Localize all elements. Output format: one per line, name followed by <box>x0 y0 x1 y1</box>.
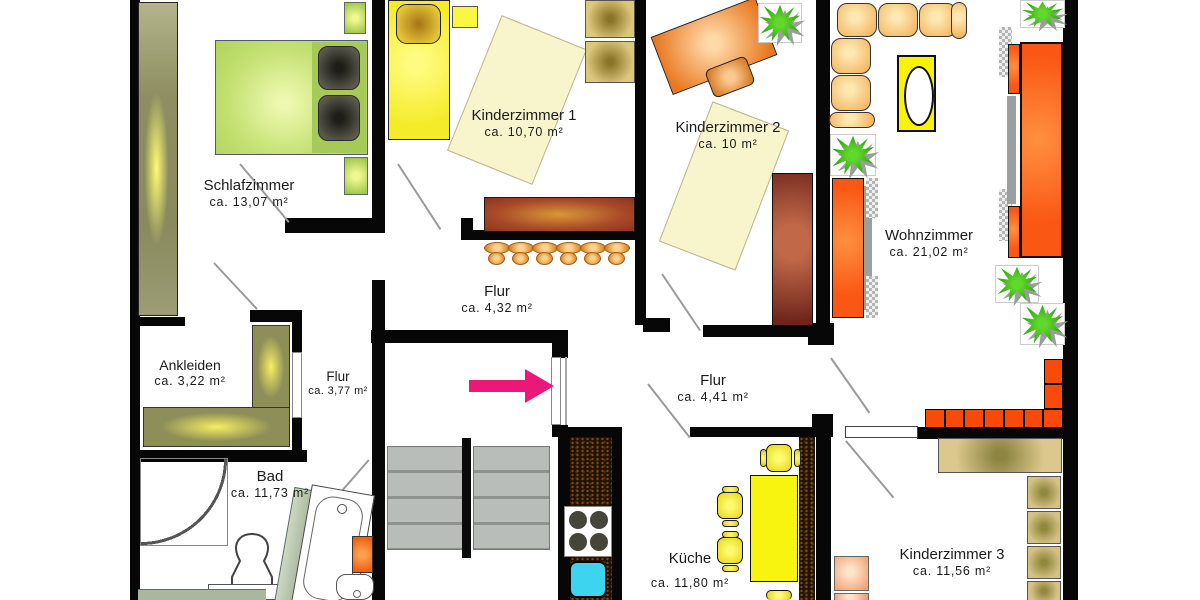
plant-icon-wohnzimmer-bottom2 <box>1020 303 1065 345</box>
wardrobe-ankleiden-vertical <box>252 325 290 409</box>
bar-stool-3 <box>532 242 558 264</box>
room-label-ankleiden: Ankleiden ca. 3,22 m² <box>154 357 225 389</box>
wallunit-shadow <box>1007 96 1016 204</box>
stove-burner <box>590 533 608 551</box>
room-label-flur-377: Flur ca. 3,77 m² <box>308 369 367 398</box>
room-name: Küche <box>651 550 729 568</box>
room-area: ca. 10 m² <box>675 137 780 152</box>
room-area: ca. 11,73 m² <box>231 486 309 501</box>
room-label-flur-441: Flur ca. 4,41 m² <box>677 372 748 405</box>
brick-cell <box>964 409 984 428</box>
room-name: Flur <box>461 283 532 301</box>
sofa-armrest-bottom <box>829 112 875 128</box>
brick-cell <box>1004 409 1024 428</box>
bar-stool-4 <box>556 242 582 264</box>
wall-unit <box>1020 42 1063 258</box>
brick-cell <box>925 409 945 428</box>
wall-entrance-upper <box>552 330 568 358</box>
sofa-armrest-right <box>951 2 967 39</box>
wall-kueche-top-left <box>558 427 622 437</box>
dining-chair-left1 <box>717 492 743 519</box>
sofa-cushion-4 <box>831 38 871 74</box>
plant-icon-wohnzimmer-top <box>1020 0 1065 28</box>
chair-arm <box>794 449 801 467</box>
room-name: Flur <box>677 372 748 390</box>
room-area: ca. 11,56 m² <box>899 564 1004 579</box>
wallunit-wing-bottom <box>1008 206 1020 258</box>
door-swing-kinderzimmer3 <box>845 440 894 498</box>
bed-kinderzimmer3-b <box>834 593 869 600</box>
sideboard-wohnzimmer <box>832 178 864 318</box>
door-leaf-ankleiden <box>292 352 302 418</box>
stairs-left-flight <box>387 446 463 550</box>
room-name: Kinderzimmer 3 <box>899 546 1004 564</box>
wardrobe-ankleiden-horizontal <box>143 407 290 447</box>
room-name: Wohnzimmer <box>885 227 973 245</box>
bar-stool-5 <box>580 242 606 264</box>
coffee-table-oval <box>904 66 934 126</box>
coffee-table <box>897 55 936 132</box>
wall-kueche-nook-right <box>612 428 622 600</box>
door-swing-kinderzimmer1 <box>397 163 441 230</box>
stove-burner <box>590 511 608 529</box>
shelf-kinderzimmer3-3 <box>1027 546 1061 579</box>
bath-counter <box>138 589 266 600</box>
room-label-kinderzimmer1: Kinderzimmer 1 ca. 10,70 m² <box>471 107 576 140</box>
sideboard-hatch-bottom <box>866 276 878 318</box>
shelf-kinderzimmer3-4 <box>1027 581 1061 600</box>
nightstand-top <box>344 2 366 34</box>
wallunit-wing-top <box>1008 44 1020 94</box>
brick-cell <box>1043 409 1063 428</box>
room-name: Flur <box>308 369 367 385</box>
sofa-cushion-5 <box>831 75 871 111</box>
wall-stub-ankleiden-left <box>140 317 185 326</box>
room-area: ca. 3,77 m² <box>308 385 367 398</box>
room-label-kinderzimmer3: Kinderzimmer 3 ca. 11,56 m² <box>899 546 1004 579</box>
wall-schlafzimmer-bottom <box>285 218 372 233</box>
desk-kinderzimmer1-b <box>585 41 635 83</box>
sideboard-hatch-top <box>866 178 878 218</box>
brick-cell <box>1044 359 1063 384</box>
kitchen-counter-right <box>799 437 815 600</box>
bath-sink <box>336 574 374 600</box>
wall-kueche-top-right <box>690 427 816 437</box>
stairs-right-flight <box>473 446 550 550</box>
nightstand-bottom <box>344 157 368 195</box>
sofa-cushion-1 <box>837 3 877 37</box>
plant-icon-wohnzimmer-bottom1 <box>995 265 1039 303</box>
wardrobe-schlafzimmer <box>138 2 178 316</box>
shelf-kinderzimmer3-2 <box>1027 511 1061 544</box>
desk-kinderzimmer1-a <box>585 0 635 38</box>
room-area: ca. 13,07 m² <box>204 195 295 210</box>
brick-shelf-column <box>1044 359 1063 409</box>
shower <box>140 458 228 546</box>
wall-outer-right <box>1063 0 1078 600</box>
entrance-arrow-head <box>525 369 554 403</box>
dining-chair-bottom <box>766 590 792 600</box>
dining-chair-top <box>766 444 792 472</box>
room-area: ca. 10,70 m² <box>471 125 576 140</box>
floor-plan: Schlafzimmer ca. 13,07 m² Kinderzimmer 1… <box>0 0 1200 600</box>
door-swing-wohnzimmer <box>830 357 870 413</box>
wall-kinderzimmer1-kinderzimmer2 <box>635 0 646 325</box>
bath-sink-drain <box>353 590 361 598</box>
wall-kueche-kinderzimmer3 <box>816 414 831 600</box>
room-name: Bad <box>231 468 309 486</box>
room-label-flur-432: Flur ca. 4,32 m² <box>461 283 532 316</box>
bar-counter <box>484 197 635 232</box>
room-name: Kinderzimmer 1 <box>471 107 576 125</box>
room-label-bad: Bad ca. 11,73 m² <box>231 468 309 501</box>
room-area: ca. 11,80 m² <box>651 576 729 591</box>
room-name: Schlafzimmer <box>204 177 295 195</box>
room-label-kueche: Küche ca. 11,80 m² <box>651 550 729 591</box>
dining-table <box>750 475 798 582</box>
wall-schlafzimmer-kinderzimmer1 <box>372 0 385 233</box>
pillow-kinderzimmer1 <box>396 4 441 44</box>
chair-arm <box>722 486 739 493</box>
toilet <box>217 532 287 586</box>
wall-foot-k2-left <box>643 318 670 332</box>
plant-icon-kinderzimmer2 <box>758 3 802 43</box>
desk-kinderzimmer3 <box>938 438 1062 473</box>
bar-stool-2 <box>508 242 534 264</box>
brick-cell <box>984 409 1004 428</box>
bed-kinderzimmer3-a <box>834 556 869 591</box>
sofa-cushion-2 <box>878 3 918 37</box>
entrance-arrow-shaft <box>469 380 525 392</box>
chair-arm <box>722 520 739 527</box>
room-area: ca. 4,32 m² <box>461 301 532 316</box>
stove-burner <box>569 533 587 551</box>
bed-pillow-2 <box>318 95 360 141</box>
room-area: ca. 21,02 m² <box>885 245 973 260</box>
stairs-divider <box>462 438 471 558</box>
door-frame-entrance <box>565 357 567 425</box>
bath-radiator <box>352 536 373 573</box>
room-name: Kinderzimmer 2 <box>675 119 780 137</box>
shelf-kinderzimmer3-1 <box>1027 476 1061 509</box>
wall-ankleiden-flur-upper <box>292 312 302 352</box>
room-label-wohnzimmer: Wohnzimmer ca. 21,02 m² <box>885 227 973 260</box>
room-area: ca. 3,22 m² <box>154 374 225 389</box>
brick-shelf-row <box>925 409 1063 428</box>
bar-stool-1 <box>484 242 510 264</box>
wall-kinderzimmer2-wohnzimmer <box>816 0 830 330</box>
wall-flur-stairhall-left <box>372 280 385 600</box>
brick-cell <box>1044 384 1063 409</box>
plant-icon-wohnzimmer-left <box>830 134 876 176</box>
wall-stairhall-top <box>371 330 568 343</box>
stove-burner <box>569 511 587 529</box>
door-leaf-kinderzimmer3 <box>845 426 918 438</box>
nightstand-kinderzimmer1 <box>452 6 478 28</box>
wall-kinderzimmer2-bottom <box>703 325 816 337</box>
bar-stool-6 <box>604 242 630 264</box>
room-label-schlafzimmer: Schlafzimmer ca. 13,07 m² <box>204 177 295 210</box>
kitchen-sink <box>569 561 607 598</box>
chair-arm <box>722 531 739 538</box>
rug-kinderzimmer1 <box>447 15 587 185</box>
door-swing-ankleiden <box>213 262 257 309</box>
brick-cell <box>1024 409 1044 428</box>
bed-pillow-1 <box>318 46 360 90</box>
brick-cell <box>945 409 965 428</box>
room-area: ca. 4,41 m² <box>677 390 748 405</box>
wardrobe-kinderzimmer2 <box>772 173 813 326</box>
chair-arm <box>760 449 767 467</box>
room-name: Ankleiden <box>154 357 225 374</box>
stove <box>564 506 612 557</box>
room-label-kinderzimmer2: Kinderzimmer 2 ca. 10 m² <box>675 119 780 152</box>
